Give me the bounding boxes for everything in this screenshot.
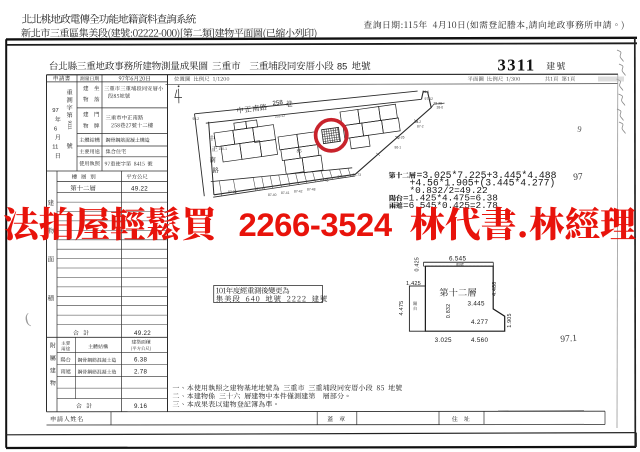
svg-text:97: 97 <box>52 108 58 114</box>
svg-text:49.22: 49.22 <box>134 330 151 337</box>
svg-text:2.78: 2.78 <box>134 368 148 375</box>
svg-text:93-2: 93-2 <box>193 117 200 121</box>
svg-text:11: 11 <box>52 145 58 151</box>
svg-text:87-2: 87-2 <box>417 125 424 129</box>
svg-text:87-33: 87-33 <box>228 190 237 194</box>
svg-text:4.488: 4.488 <box>492 282 498 297</box>
svg-text:87-41: 87-41 <box>281 191 290 195</box>
svg-text:87-45: 87-45 <box>320 179 329 183</box>
svg-text:96-1: 96-1 <box>423 90 430 94</box>
svg-text:253-12: 253-12 <box>275 114 286 119</box>
svg-text:140-1: 140-1 <box>219 147 228 151</box>
svg-text:0.832: 0.832 <box>446 304 452 319</box>
svg-text:97.1: 97.1 <box>560 334 578 345</box>
svg-text:87-48: 87-48 <box>307 188 316 192</box>
svg-text:6.545: 6.545 <box>449 255 466 262</box>
svg-text:258: 258 <box>272 99 284 107</box>
svg-text:97-12: 97-12 <box>425 97 434 101</box>
svg-text:3311: 3311 <box>498 56 536 75</box>
svg-text:87-40: 87-40 <box>268 193 277 197</box>
svg-text:4.475: 4.475 <box>399 301 405 316</box>
svg-text:0.425: 0.425 <box>415 257 421 272</box>
svg-text:1.905: 1.905 <box>507 313 513 328</box>
svg-text:9.16: 9.16 <box>134 403 148 410</box>
svg-text:(: ( <box>24 311 32 328</box>
svg-text:97: 97 <box>573 172 584 183</box>
svg-text:87-73: 87-73 <box>353 173 362 177</box>
svg-text:2266-3524: 2266-3524 <box>239 206 393 243</box>
svg-text:4.560: 4.560 <box>471 337 488 344</box>
svg-text:87-3: 87-3 <box>257 187 264 191</box>
svg-text:3.445: 3.445 <box>468 301 485 308</box>
svg-text:3.025: 3.025 <box>435 337 452 344</box>
svg-text:87-42: 87-42 <box>294 189 303 193</box>
svg-text:49.22: 49.22 <box>131 185 148 192</box>
svg-text:1.425: 1.425 <box>406 281 421 287</box>
svg-text:85: 85 <box>337 61 347 71</box>
svg-text:87-19: 87-19 <box>338 175 347 179</box>
svg-text:9111: 9111 <box>68 121 73 131</box>
svg-text:6.38: 6.38 <box>134 357 148 364</box>
svg-text:38-6: 38-6 <box>437 105 444 109</box>
svg-text:9: 9 <box>577 124 583 134</box>
svg-text:86-1: 86-1 <box>395 146 402 150</box>
svg-text:4.277: 4.277 <box>471 319 488 326</box>
svg-text:6: 6 <box>54 127 57 133</box>
